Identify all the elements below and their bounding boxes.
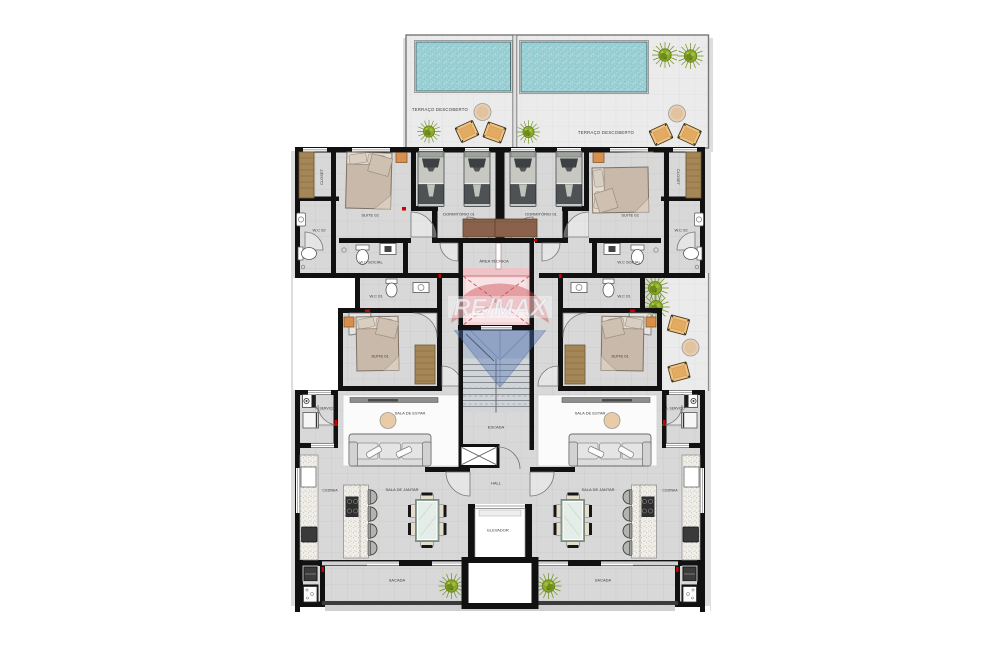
svg-text:SALA DE ESTAR: SALA DE ESTAR [575,411,606,416]
svg-text:ELEVADOR: ELEVADOR [487,528,509,533]
svg-text:W.C 01: W.C 01 [617,294,631,299]
svg-text:Á. SERVIÇO: Á. SERVIÇO [315,407,335,411]
svg-text:SACADA: SACADA [595,578,612,583]
svg-text:SACADA: SACADA [389,578,406,583]
svg-text:ESCADA: ESCADA [488,425,505,430]
svg-text:SUITE 01: SUITE 01 [611,354,629,359]
svg-text:W.C SOCIAL: W.C SOCIAL [359,260,383,265]
svg-text:COZINHA: COZINHA [322,489,338,493]
svg-text:CLOSET: CLOSET [676,169,681,186]
svg-text:CLOSET: CLOSET [319,168,324,185]
svg-text:SUITE 02: SUITE 02 [621,213,639,218]
svg-text:SALA DE JANTAR: SALA DE JANTAR [581,487,614,492]
svg-text:W.C 01: W.C 01 [369,294,383,299]
svg-text:SUITE 01: SUITE 01 [371,354,389,359]
svg-text:DORMITÓRIO 01: DORMITÓRIO 01 [443,212,475,217]
svg-text:SUITE 02: SUITE 02 [361,213,379,218]
svg-text:HALL: HALL [491,481,502,486]
svg-text:DORMITÓRIO 01: DORMITÓRIO 01 [525,212,557,217]
svg-text:Á. SERVIÇO: Á. SERVIÇO [665,407,685,411]
svg-text:W.C 02: W.C 02 [312,228,326,233]
svg-text:SALA DE ESTAR: SALA DE ESTAR [395,411,426,416]
svg-text:TERRAÇO DESCOBERTO: TERRAÇO DESCOBERTO [412,107,469,112]
svg-text:TERRAÇO DESCOBERTO: TERRAÇO DESCOBERTO [578,130,635,135]
svg-text:W.C SOCIAL: W.C SOCIAL [617,260,641,265]
svg-text:ÁREA TÉCNICA: ÁREA TÉCNICA [479,259,509,264]
svg-text:RE/MAX: RE/MAX [453,295,548,322]
svg-text:SALA DE JANTAR: SALA DE JANTAR [385,487,418,492]
svg-text:COZINHA: COZINHA [662,489,678,493]
svg-text:W.C 02: W.C 02 [674,228,688,233]
